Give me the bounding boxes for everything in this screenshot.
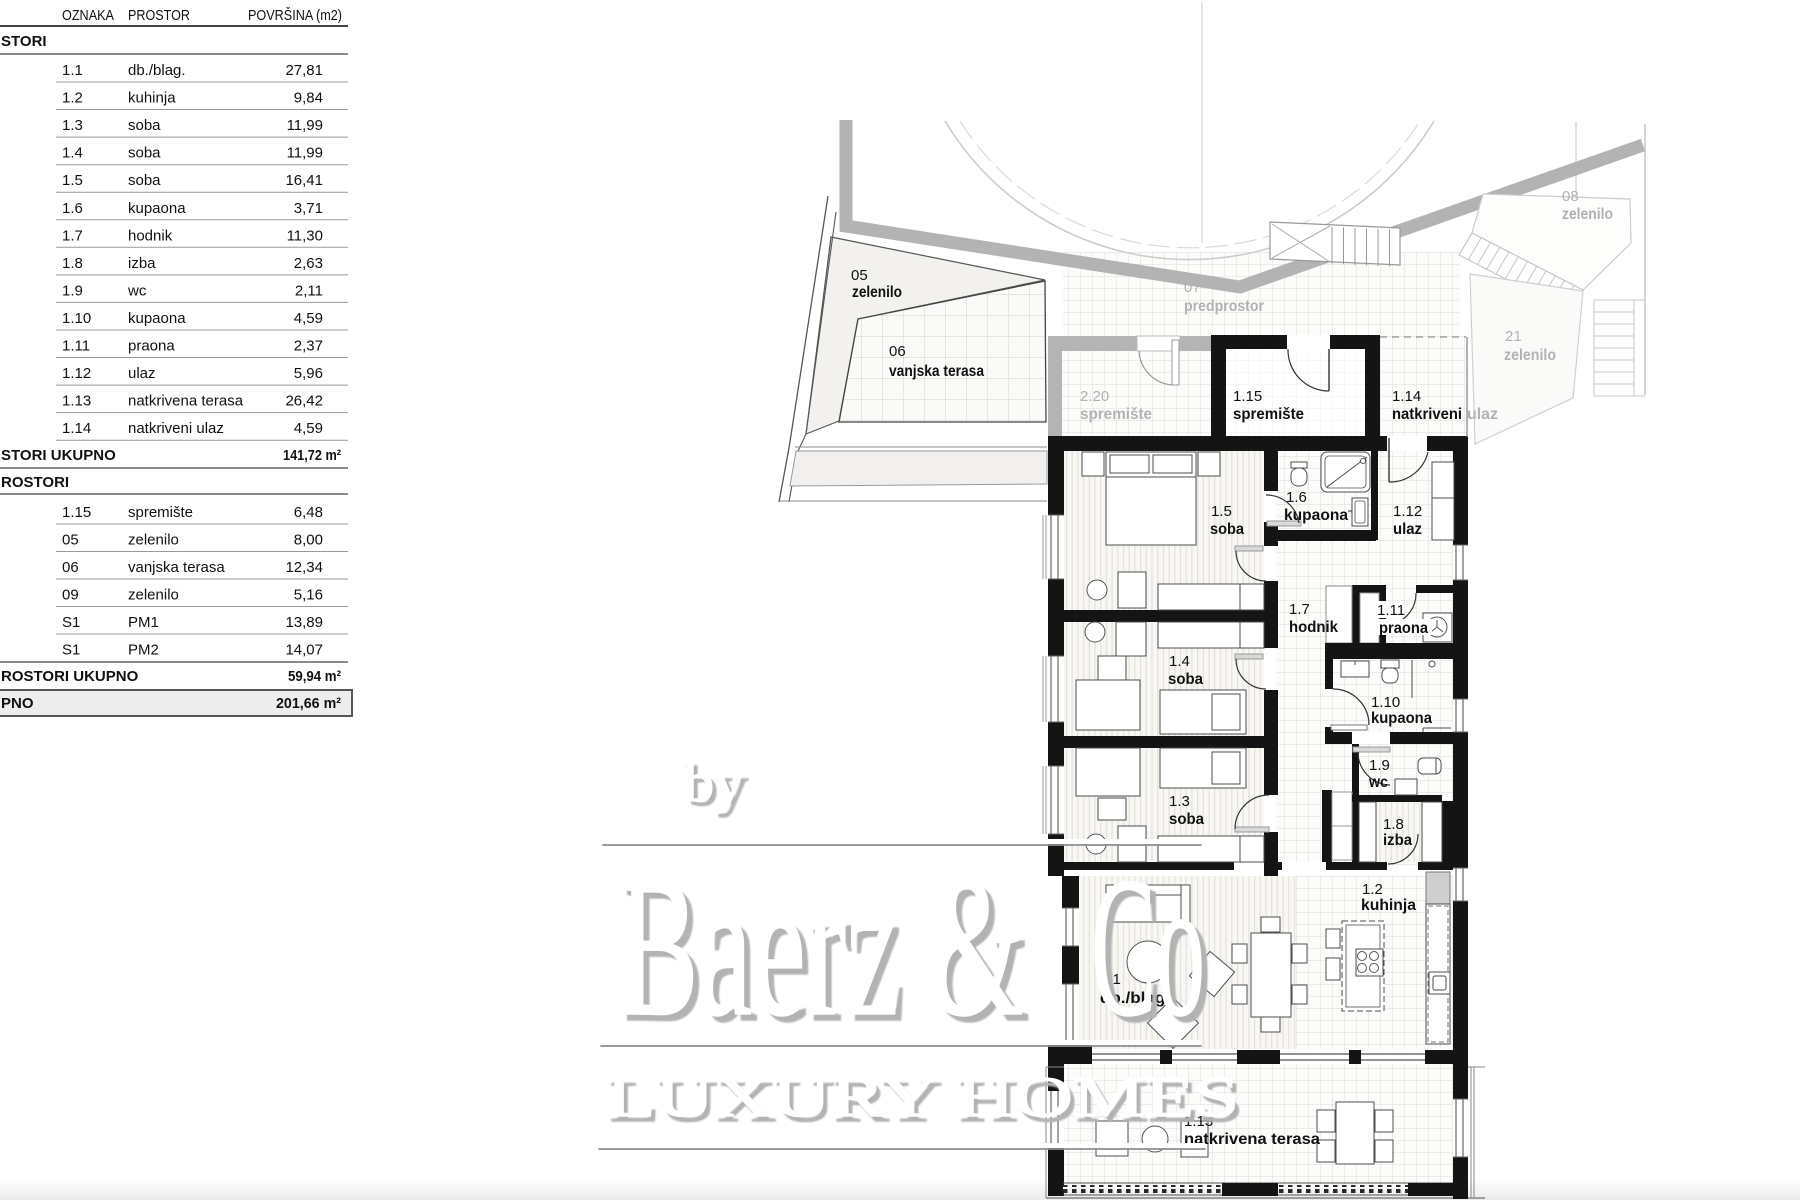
svg-text:wc: wc <box>1368 774 1388 791</box>
svg-text:1.14: 1.14 <box>62 420 91 437</box>
svg-text:OZNAKA: OZNAKA <box>62 8 114 24</box>
svg-text:zelenilo: zelenilo <box>1562 206 1613 223</box>
svg-text:3,71: 3,71 <box>294 200 323 217</box>
svg-text:zelenilo: zelenilo <box>128 587 179 604</box>
svg-text:PROSTOR: PROSTOR <box>128 8 190 24</box>
svg-text:1.8: 1.8 <box>1383 816 1404 833</box>
svg-text:vanjska terasa: vanjska terasa <box>128 559 225 576</box>
svg-text:1.3: 1.3 <box>1169 793 1190 810</box>
svg-text:hodnik: hodnik <box>1289 619 1338 636</box>
svg-text:59,94 m²: 59,94 m² <box>288 668 341 685</box>
svg-text:2.20: 2.20 <box>1080 388 1109 405</box>
svg-text:kuhinja: kuhinja <box>128 90 176 107</box>
svg-text:1.4: 1.4 <box>62 145 83 162</box>
svg-text:1.2: 1.2 <box>62 90 83 107</box>
svg-text:1.12: 1.12 <box>62 365 91 382</box>
svg-text:08: 08 <box>1562 188 1579 205</box>
svg-text:kupaona: kupaona <box>128 200 186 217</box>
svg-text:vanjska terasa: vanjska terasa <box>889 363 984 380</box>
svg-text:ulaz: ulaz <box>1393 521 1422 538</box>
svg-text:soba: soba <box>128 117 161 134</box>
svg-text:praona: praona <box>1379 620 1428 637</box>
svg-text:1.6: 1.6 <box>1286 489 1307 506</box>
svg-text:soba: soba <box>1169 811 1204 828</box>
svg-text:izba: izba <box>128 255 156 272</box>
svg-text:1.6: 1.6 <box>62 200 83 217</box>
svg-text:wc: wc <box>127 282 147 299</box>
svg-text:2,63: 2,63 <box>294 255 323 272</box>
svg-text:1.8: 1.8 <box>62 255 83 272</box>
svg-text:LUXURY HOMES: LUXURY HOMES <box>606 1066 1239 1129</box>
svg-text:spremište: spremište <box>1080 406 1152 423</box>
svg-text:16,41: 16,41 <box>285 172 323 189</box>
svg-text:06: 06 <box>889 343 906 360</box>
svg-text:5,96: 5,96 <box>294 365 323 382</box>
svg-text:14,07: 14,07 <box>285 642 323 659</box>
svg-text:11,99: 11,99 <box>287 117 323 134</box>
svg-text:zelenilo: zelenilo <box>128 532 179 549</box>
svg-text:PM1: PM1 <box>128 614 159 631</box>
svg-text:11,30: 11,30 <box>287 227 323 244</box>
svg-text:1.2: 1.2 <box>1362 881 1383 898</box>
svg-text:by: by <box>684 752 744 814</box>
svg-text:1.11: 1.11 <box>62 338 90 355</box>
svg-text:2,37: 2,37 <box>294 338 323 355</box>
svg-text:4,59: 4,59 <box>294 310 323 327</box>
svg-text:spremište: spremište <box>128 504 193 521</box>
svg-text:natkriveni: natkriveni <box>1392 406 1462 423</box>
svg-text:1.14: 1.14 <box>1392 388 1421 405</box>
svg-text:27,81: 27,81 <box>285 62 323 79</box>
svg-text:soba: soba <box>128 145 161 162</box>
svg-text:soba: soba <box>1168 671 1203 688</box>
svg-text:natkrivena terasa: natkrivena terasa <box>128 393 244 410</box>
svg-text:1.12: 1.12 <box>1393 503 1422 520</box>
svg-text:21: 21 <box>1505 328 1522 345</box>
svg-text:1.1: 1.1 <box>62 62 83 79</box>
svg-text:09: 09 <box>62 587 79 604</box>
svg-text:1.15: 1.15 <box>1233 388 1262 405</box>
svg-text:26,42: 26,42 <box>285 393 323 410</box>
svg-text:hodnik: hodnik <box>128 227 173 244</box>
svg-text:13,89: 13,89 <box>285 614 323 631</box>
svg-text:1.7: 1.7 <box>1289 601 1310 618</box>
svg-text:POVRŠINA (m2): POVRŠINA (m2) <box>248 7 342 24</box>
svg-text:izba: izba <box>1383 832 1412 849</box>
svg-text:1.9: 1.9 <box>1369 757 1390 774</box>
svg-text:12,34: 12,34 <box>285 559 323 576</box>
svg-text:PNO: PNO <box>1 695 34 712</box>
svg-text:9,84: 9,84 <box>294 90 323 107</box>
svg-text:S1: S1 <box>62 642 80 659</box>
svg-text:kupaona: kupaona <box>1284 507 1348 524</box>
svg-text:STORI UKUPNO: STORI UKUPNO <box>1 447 116 464</box>
svg-text:ulaz: ulaz <box>128 365 156 382</box>
svg-text:ulaz: ulaz <box>1467 406 1498 423</box>
svg-text:kupaona: kupaona <box>128 310 186 327</box>
svg-text:natkriveni ulaz: natkriveni ulaz <box>128 420 224 437</box>
svg-text:kuhinja: kuhinja <box>1361 897 1416 914</box>
svg-text:Baerz &: Baerz & <box>618 837 1024 1058</box>
svg-text:Co: Co <box>1091 837 1205 1058</box>
svg-text:05: 05 <box>851 267 868 284</box>
svg-text:141,72 m²: 141,72 m² <box>283 447 341 464</box>
svg-text:1.9: 1.9 <box>62 282 83 299</box>
svg-text:1.10: 1.10 <box>1371 694 1400 711</box>
svg-text:praona: praona <box>128 338 175 355</box>
svg-text:201,66 m²: 201,66 m² <box>276 695 341 712</box>
svg-text:zelenilo: zelenilo <box>852 284 902 301</box>
svg-text:STORI: STORI <box>1 33 47 50</box>
svg-text:ROSTORI UKUPNO: ROSTORI UKUPNO <box>1 668 139 685</box>
svg-text:1.4: 1.4 <box>1169 653 1190 670</box>
svg-text:1.13: 1.13 <box>62 393 91 410</box>
svg-text:1.10: 1.10 <box>62 310 91 327</box>
svg-text:predprostor: predprostor <box>1184 298 1264 315</box>
svg-text:db./blag.: db./blag. <box>128 62 186 79</box>
svg-text:1.15: 1.15 <box>62 504 91 521</box>
svg-text:spremište: spremište <box>1233 406 1304 423</box>
svg-text:ROSTORI: ROSTORI <box>1 474 69 491</box>
svg-text:1.5: 1.5 <box>62 172 83 189</box>
svg-text:8,00: 8,00 <box>294 532 323 549</box>
svg-text:1.3: 1.3 <box>62 117 83 134</box>
svg-text:1.11: 1.11 <box>1377 602 1405 619</box>
svg-text:PM2: PM2 <box>128 642 159 659</box>
svg-text:1.7: 1.7 <box>62 227 83 244</box>
svg-text:05: 05 <box>62 532 79 549</box>
svg-text:kupaona: kupaona <box>1371 710 1432 727</box>
svg-text:6,48: 6,48 <box>294 504 323 521</box>
svg-text:zelenilo: zelenilo <box>1504 347 1556 364</box>
svg-text:07: 07 <box>1184 279 1201 296</box>
svg-text:5,16: 5,16 <box>294 587 323 604</box>
svg-text:2,11: 2,11 <box>295 282 323 299</box>
svg-text:soba: soba <box>1210 521 1244 538</box>
svg-text:1.5: 1.5 <box>1211 503 1232 520</box>
svg-text:4,59: 4,59 <box>294 420 323 437</box>
svg-text:S1: S1 <box>62 614 80 631</box>
svg-text:06: 06 <box>62 559 79 576</box>
svg-text:11,99: 11,99 <box>287 145 323 162</box>
svg-text:soba: soba <box>128 172 161 189</box>
